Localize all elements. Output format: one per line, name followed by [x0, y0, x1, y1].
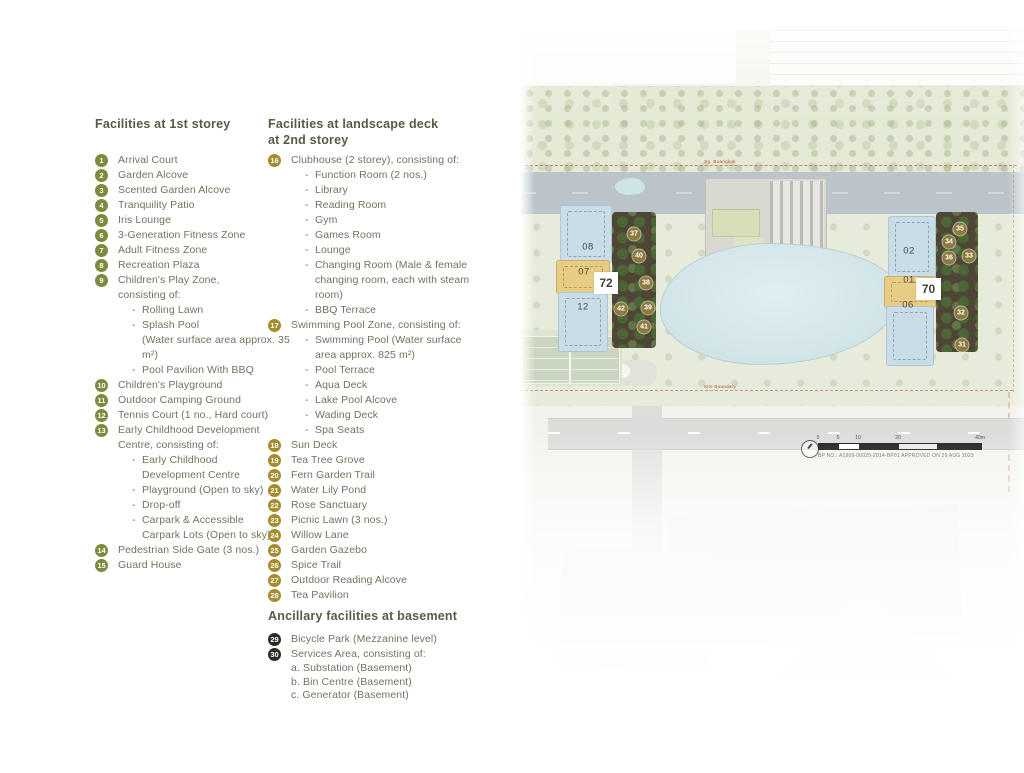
neighbor-building-ghost	[557, 546, 713, 674]
facility-number-badge: 12	[95, 409, 108, 422]
facility-item: 3Scented Garden Alcove	[95, 183, 295, 198]
facility-number-badge: 30	[268, 648, 281, 661]
map-facility-marker-36: 36	[943, 252, 956, 265]
facility-number-badge: 9	[95, 274, 108, 287]
sub-item-bullet: -	[305, 378, 315, 393]
facility-sub-label: Aqua Deck	[315, 378, 367, 393]
facility-letter-line: b. Bin Centre (Basement)	[268, 676, 483, 690]
legend-section-landscape-deck: Facilities at landscape deck at 2nd stor…	[268, 116, 483, 603]
facility-sub-item: -BBQ Terrace	[268, 303, 483, 318]
section-title: Facilities at 1st storey	[95, 116, 295, 132]
clubhouse-lawn	[712, 209, 760, 237]
map-facility-marker-35: 35	[954, 223, 967, 236]
facility-sub-label: Swimming Pool (Water surface area approx…	[315, 333, 462, 363]
unit-outline	[893, 312, 927, 360]
block70-number-chip: 70	[916, 278, 941, 300]
facility-item: 20Fern Garden Trail	[268, 468, 483, 483]
facility-number-badge: 19	[268, 454, 281, 467]
facility-item: 17Swimming Pool Zone, consisting of:	[268, 318, 483, 333]
block72-unit-08	[560, 205, 612, 263]
facility-item: 9Children's Play Zone, consisting of:	[95, 273, 295, 303]
facility-number-badge: 17	[268, 319, 281, 332]
facility-item: 24Willow Lane	[268, 528, 483, 543]
facility-item: 28Tea Pavilion	[268, 588, 483, 603]
facility-number-badge: 11	[95, 394, 108, 407]
facility-sub-label: Reading Room	[315, 198, 386, 213]
facility-label: Fern Garden Trail	[291, 468, 375, 483]
facility-label: Outdoor Reading Alcove	[291, 573, 407, 588]
sub-item-bullet: -	[132, 453, 142, 483]
facility-label: 3-Generation Fitness Zone	[118, 228, 245, 243]
facility-list: 1Arrival Court2Garden Alcove3Scented Gar…	[95, 153, 295, 573]
facility-sub-item: -Drop-off	[95, 498, 295, 513]
sub-item-bullet: -	[305, 243, 315, 258]
map-unit-label-12: 12	[577, 302, 589, 313]
facility-number-badge: 20	[268, 469, 281, 482]
map-facility-marker-34: 34	[943, 236, 956, 249]
sub-item-bullet: -	[305, 333, 315, 363]
map-facility-marker-39: 39	[642, 302, 655, 315]
facility-label: Bicycle Park (Mezzanine level)	[291, 632, 437, 647]
facility-number-badge: 15	[95, 559, 108, 572]
facility-sub-item: -Carpark & Accessible Carpark Lots (Open…	[95, 513, 295, 543]
facility-item: 1Arrival Court	[95, 153, 295, 168]
facility-item: 21Water Lily Pond	[268, 483, 483, 498]
facility-sub-label: Rolling Lawn	[142, 303, 203, 318]
facility-label: Early Childhood Development Centre, cons…	[118, 423, 260, 453]
facility-label: Scented Garden Alcove	[118, 183, 230, 198]
facility-number-badge: 16	[268, 154, 281, 167]
facility-sub-label: Lake Pool Alcove	[315, 393, 397, 408]
facility-sub-item: -Gym	[268, 213, 483, 228]
facility-label: Garden Alcove	[118, 168, 188, 183]
facility-sub-item: -Changing Room (Male & female changing r…	[268, 258, 483, 303]
facility-item: 11Outdoor Camping Ground	[95, 393, 295, 408]
facility-item: 4Tranquility Patio	[95, 198, 295, 213]
facility-sub-label: Games Room	[315, 228, 381, 243]
map-facility-marker-41: 41	[638, 321, 651, 334]
facility-sub-item: -Early Childhood Development Centre	[95, 453, 295, 483]
map-unit-label-02: 02	[903, 246, 915, 257]
map-facility-marker-32: 32	[955, 307, 968, 320]
map-facility-marker-37: 37	[628, 228, 641, 241]
facility-item: 22Rose Sanctuary	[268, 498, 483, 513]
map-facility-marker-42: 42	[615, 303, 628, 316]
facility-item: 10Children's Playground	[95, 378, 295, 393]
facility-list: 29Bicycle Park (Mezzanine level)30Servic…	[268, 632, 483, 703]
facility-number-badge: 14	[95, 544, 108, 557]
sub-item-bullet: -	[305, 168, 315, 183]
site-boundary-right	[1013, 165, 1014, 392]
vegetation-band	[520, 86, 1024, 172]
facility-sub-item: -Lake Pool Alcove	[268, 393, 483, 408]
facility-number-badge: 5	[95, 214, 108, 227]
legend-section-first-storey: Facilities at 1st storey 1Arrival Court2…	[95, 116, 295, 573]
facility-number-badge: 13	[95, 424, 108, 437]
boundary-label-bottom: Site Boundary	[704, 384, 736, 389]
facility-sub-label: Gym	[315, 213, 337, 228]
facility-sub-label: Wading Deck	[315, 408, 378, 423]
facility-sub-label: Changing Room (Male & female changing ro…	[315, 258, 483, 303]
facility-sub-item: -Aqua Deck	[268, 378, 483, 393]
facility-label: Picnic Lawn (3 nos.)	[291, 513, 388, 528]
sub-item-bullet: -	[305, 303, 315, 318]
facility-label: Outdoor Camping Ground	[118, 393, 241, 408]
facility-item: 19Tea Tree Grove	[268, 453, 483, 468]
facility-label: Adult Fitness Zone	[118, 243, 207, 258]
facility-label: Water Lily Pond	[291, 483, 366, 498]
sub-item-bullet: -	[132, 318, 142, 363]
facility-sub-label: Lounge	[315, 243, 351, 258]
section-title: Facilities at landscape deck at 2nd stor…	[268, 116, 483, 148]
facility-sub-item: -Pool Pavilion With BBQ	[95, 363, 295, 378]
facility-sub-label: Library	[315, 183, 348, 198]
facility-item: 8Recreation Plaza	[95, 258, 295, 273]
sub-item-bullet: -	[305, 423, 315, 438]
facility-label: Guard House	[118, 558, 182, 573]
facility-sub-label: BBQ Terrace	[315, 303, 376, 318]
scale-tick-0: 0	[817, 435, 820, 441]
facility-number-badge: 23	[268, 514, 281, 527]
site-boundary-bottom	[525, 390, 1013, 391]
facility-number-badge: 24	[268, 529, 281, 542]
facility-sub-item: -Rolling Lawn	[95, 303, 295, 318]
facility-label: Swimming Pool Zone, consisting of:	[291, 318, 461, 333]
facility-item: 25Garden Gazebo	[268, 543, 483, 558]
facility-sub-label: Pool Pavilion With BBQ	[142, 363, 254, 378]
facility-sub-label: Playground (Open to sky)	[142, 483, 263, 498]
facility-sub-label: Carpark & Accessible Carpark Lots (Open …	[142, 513, 271, 543]
facility-sub-item: -Playground (Open to sky)	[95, 483, 295, 498]
facility-number-badge: 29	[268, 633, 281, 646]
map-unit-label-08: 08	[582, 242, 594, 253]
facility-label: Clubhouse (2 storey), consisting of:	[291, 153, 459, 168]
neighbor-building-ghost	[520, 30, 736, 84]
site-boundary-top	[525, 165, 1017, 166]
facility-number-badge: 22	[268, 499, 281, 512]
facility-sub-label: Early Childhood Development Centre	[142, 453, 240, 483]
facility-sub-item: -Pool Terrace	[268, 363, 483, 378]
facility-item: 26Spice Trail	[268, 558, 483, 573]
facility-label: Pedestrian Side Gate (3 nos.)	[118, 543, 259, 558]
section-title: Ancillary facilities at basement	[268, 608, 483, 624]
facility-number-badge: 3	[95, 184, 108, 197]
legend-section-basement: Ancillary facilities at basement 29Bicyc…	[268, 608, 483, 703]
facility-label: Willow Lane	[291, 528, 349, 543]
sub-item-bullet: -	[305, 393, 315, 408]
facility-label: Children's Play Zone, consisting of:	[118, 273, 220, 303]
sub-item-bullet: -	[132, 498, 142, 513]
map-facility-marker-33: 33	[963, 250, 976, 263]
facility-item: 18Sun Deck	[268, 438, 483, 453]
scale-tick-20: 20	[895, 435, 901, 441]
facility-sub-item: -Games Room	[268, 228, 483, 243]
sub-item-bullet: -	[305, 363, 315, 378]
facility-number-badge: 1	[95, 154, 108, 167]
map-facility-marker-40: 40	[633, 250, 646, 263]
facility-label: Arrival Court	[118, 153, 178, 168]
scale-tick-5: 5	[837, 435, 840, 441]
scale-tick-10: 10	[855, 435, 861, 441]
facility-number-badge: 25	[268, 544, 281, 557]
block70-unit-06	[886, 306, 934, 366]
facility-item: 5Iris Lounge	[95, 213, 295, 228]
facility-label: Tea Tree Grove	[291, 453, 365, 468]
facility-item: 29Bicycle Park (Mezzanine level)	[268, 632, 483, 647]
facility-sub-item: -Lounge	[268, 243, 483, 258]
facility-label: Garden Gazebo	[291, 543, 367, 558]
map-unit-label-07: 07	[578, 267, 590, 278]
facility-sub-item: -Library	[268, 183, 483, 198]
facility-label: Tea Pavilion	[291, 588, 349, 603]
facility-label: Tranquility Patio	[118, 198, 195, 213]
facility-item: 63-Generation Fitness Zone	[95, 228, 295, 243]
facility-sub-label: Function Room (2 nos.)	[315, 168, 427, 183]
facility-sub-label: Spa Seats	[315, 423, 364, 438]
facility-label: Spice Trail	[291, 558, 341, 573]
neighbor-building-ghost	[668, 505, 962, 645]
facility-item: 30Services Area, consisting of:	[268, 647, 483, 662]
facility-number-badge: 6	[95, 229, 108, 242]
facility-list: 16Clubhouse (2 storey), consisting of:-F…	[268, 153, 483, 603]
facility-label: Rose Sanctuary	[291, 498, 367, 513]
map-facility-marker-31: 31	[956, 339, 969, 352]
facility-sub-item: -Splash Pool (Water surface area approx.…	[95, 318, 295, 363]
facility-number-badge: 21	[268, 484, 281, 497]
sub-item-bullet: -	[132, 363, 142, 378]
facility-letter-line: c. Generator (Basement)	[268, 689, 483, 703]
facility-letter-line: a. Substation (Basement)	[268, 662, 483, 676]
sub-item-bullet: -	[132, 513, 142, 543]
scale-tick-40m: 40m	[975, 435, 985, 441]
facility-sub-item: -Swimming Pool (Water surface area appro…	[268, 333, 483, 363]
facility-sub-item: -Reading Room	[268, 198, 483, 213]
facility-number-badge: 10	[95, 379, 108, 392]
facility-number-badge: 18	[268, 439, 281, 452]
facility-item: 15Guard House	[95, 558, 295, 573]
facility-number-badge: 7	[95, 244, 108, 257]
boundary-label-top: Sg. Buangkok	[704, 159, 736, 164]
facility-label: Recreation Plaza	[118, 258, 200, 273]
facility-label: Sun Deck	[291, 438, 337, 453]
compass-icon	[801, 440, 819, 458]
facility-sub-item: -Wading Deck	[268, 408, 483, 423]
brochure-page: { "ui": { "sub_bullet": "-" }, "legend":…	[0, 0, 1024, 773]
facility-item: 14Pedestrian Side Gate (3 nos.)	[95, 543, 295, 558]
facility-item: 7Adult Fitness Zone	[95, 243, 295, 258]
facility-number-badge: 26	[268, 559, 281, 572]
bp-approval-text: BP NO.: A1909-00025-2014-BP01 APPROVED O…	[818, 453, 974, 459]
sub-item-bullet: -	[305, 183, 315, 198]
sub-item-bullet: -	[305, 213, 315, 228]
facility-item: 13Early Childhood Development Centre, co…	[95, 423, 295, 453]
facility-label: Tennis Court (1 no., Hard court)	[118, 408, 268, 423]
map-facility-marker-38: 38	[640, 277, 653, 290]
site-plan-map: 72 70 Sg. Buangkok Site Boundary BP NO.:…	[520, 30, 1024, 720]
facility-item: 23Picnic Lawn (3 nos.)	[268, 513, 483, 528]
facility-number-badge: 28	[268, 589, 281, 602]
facility-number-badge: 8	[95, 259, 108, 272]
sub-item-bullet: -	[305, 198, 315, 213]
facility-number-badge: 2	[95, 169, 108, 182]
facility-number-badge: 4	[95, 199, 108, 212]
facility-label: Children's Playground	[118, 378, 223, 393]
facility-sub-item: -Spa Seats	[268, 423, 483, 438]
facility-item: 2Garden Alcove	[95, 168, 295, 183]
sub-item-bullet: -	[305, 258, 315, 303]
facility-number-badge: 27	[268, 574, 281, 587]
block72-number-chip: 72	[594, 272, 618, 294]
sub-item-bullet: -	[132, 483, 142, 498]
sub-item-bullet: -	[305, 408, 315, 423]
map-unit-label-06: 06	[902, 300, 914, 311]
scale-bar	[818, 443, 982, 450]
facility-item: 12Tennis Court (1 no., Hard court)	[95, 408, 295, 423]
facility-item: 16Clubhouse (2 storey), consisting of:	[268, 153, 483, 168]
facility-sub-item: -Function Room (2 nos.)	[268, 168, 483, 183]
map-unit-label-01: 01	[903, 275, 915, 286]
sub-item-bullet: -	[132, 303, 142, 318]
small-pond	[615, 178, 645, 195]
facility-label: Iris Lounge	[118, 213, 171, 228]
facility-sub-label: Drop-off	[142, 498, 181, 513]
facility-label: Services Area, consisting of:	[291, 647, 426, 662]
facility-item: 27Outdoor Reading Alcove	[268, 573, 483, 588]
facility-sub-label: Pool Terrace	[315, 363, 375, 378]
sub-item-bullet: -	[305, 228, 315, 243]
